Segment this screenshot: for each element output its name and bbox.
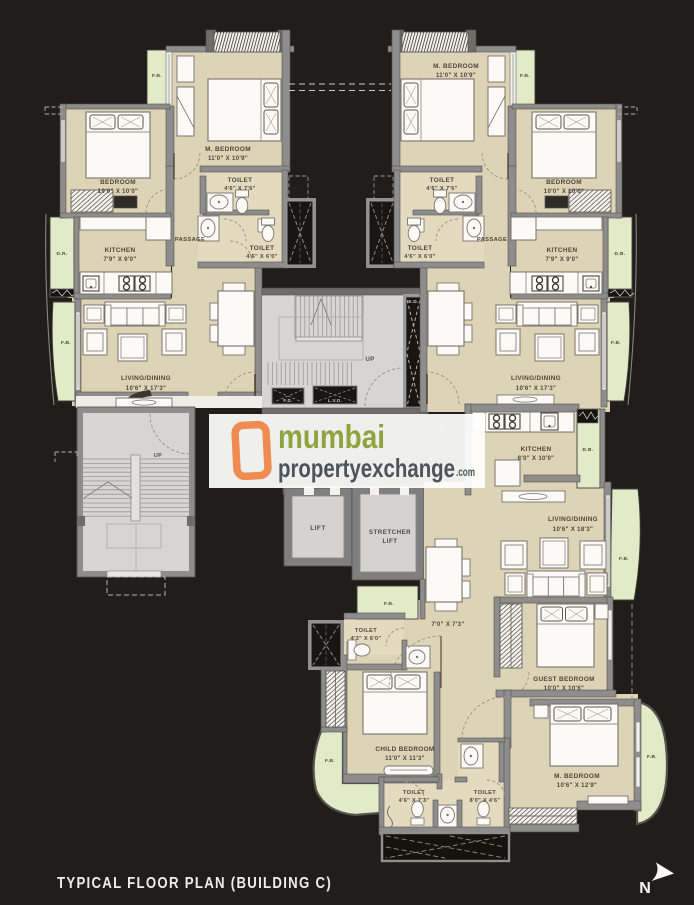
svg-text:LIFT: LIFT — [382, 538, 397, 545]
svg-text:TOILET: TOILET — [408, 245, 433, 252]
svg-text:10'6" X 12'9": 10'6" X 12'9" — [557, 783, 597, 789]
svg-text:.com: .com — [456, 467, 475, 479]
svg-text:10'0" X 10'0": 10'0" X 10'0" — [98, 189, 138, 195]
svg-text:TOILET: TOILET — [250, 245, 275, 252]
svg-text:F.B.: F.B. — [619, 556, 629, 562]
svg-text:E.D.: E.D. — [408, 299, 418, 304]
svg-text:4'6" X 7'6": 4'6" X 7'6" — [426, 186, 458, 192]
svg-text:F.B.: F.B. — [611, 340, 621, 346]
svg-text:4'3" X 6'0": 4'3" X 6'0" — [351, 636, 382, 642]
svg-text:F.D.: F.D. — [283, 398, 292, 403]
svg-text:11'0" X 10'9": 11'0" X 10'9" — [436, 73, 476, 79]
svg-text:UP: UP — [365, 356, 374, 363]
svg-text:F.B.: F.B. — [61, 340, 71, 346]
svg-text:mumbai: mumbai — [278, 418, 385, 455]
svg-text:8'0" X 10'0": 8'0" X 10'0" — [518, 456, 555, 462]
svg-text:LIFT: LIFT — [310, 525, 326, 532]
svg-text:8'0" X 4'6": 8'0" X 4'6" — [470, 798, 501, 804]
svg-text:PASSAGE: PASSAGE — [477, 237, 507, 243]
svg-text:PASSAGE: PASSAGE — [175, 237, 205, 243]
svg-text:BEDROOM: BEDROOM — [546, 179, 582, 186]
svg-text:TOILET: TOILET — [403, 790, 425, 796]
svg-text:N: N — [639, 880, 651, 897]
svg-text:11'0" X 10'9": 11'0" X 10'9" — [208, 156, 248, 162]
svg-text:F.B.: F.B. — [325, 758, 335, 764]
svg-text:F.B.: F.B. — [647, 754, 657, 760]
svg-text:GUEST BEDROOM: GUEST BEDROOM — [533, 676, 595, 683]
svg-text:D.B.: D.B. — [615, 251, 626, 257]
svg-text:7'9" X 9'0": 7'9" X 9'0" — [103, 257, 136, 263]
svg-text:M. BEDROOM: M. BEDROOM — [433, 63, 479, 70]
svg-text:F.B.: F.B. — [152, 73, 162, 79]
svg-text:TOILET: TOILET — [355, 628, 377, 634]
svg-text:LIVING/DINING: LIVING/DINING — [548, 516, 598, 523]
svg-text:propertyexchange: propertyexchange — [278, 453, 455, 483]
svg-text:M. BEDROOM: M. BEDROOM — [554, 773, 600, 780]
svg-text:STRETCHER: STRETCHER — [369, 529, 411, 536]
svg-text:TYPICAL FLOOR PLAN (BUILDING C: TYPICAL FLOOR PLAN (BUILDING C) — [57, 875, 332, 892]
svg-text:7'0" X 7'3": 7'0" X 7'3" — [431, 622, 464, 628]
svg-text:L.V.D.: L.V.D. — [328, 398, 342, 403]
svg-text:CHILD BEDROOM: CHILD BEDROOM — [375, 746, 434, 753]
svg-text:BEDROOM: BEDROOM — [100, 179, 136, 186]
svg-text:KITCHEN: KITCHEN — [521, 446, 552, 453]
svg-text:10'6" X 18'3": 10'6" X 18'3" — [553, 527, 593, 533]
svg-text:M. BEDROOM: M. BEDROOM — [205, 146, 251, 153]
svg-text:10'0" X 10'6": 10'0" X 10'6" — [544, 686, 584, 692]
svg-text:UP: UP — [154, 453, 162, 459]
svg-text:LIVING/DINING: LIVING/DINING — [121, 375, 171, 382]
svg-text:TOILET: TOILET — [228, 177, 253, 184]
svg-text:KITCHEN: KITCHEN — [547, 247, 578, 254]
svg-text:4'6" X 6'0": 4'6" X 6'0" — [246, 254, 278, 260]
svg-text:TOILET: TOILET — [474, 790, 496, 796]
svg-text:F.B.: F.B. — [520, 73, 530, 79]
svg-text:D.R.: D.R. — [57, 251, 68, 257]
svg-text:KITCHEN: KITCHEN — [105, 247, 136, 254]
svg-text:11'0" X 11'3": 11'0" X 11'3" — [385, 756, 425, 762]
svg-text:4'6" X 6'0": 4'6" X 6'0" — [404, 254, 436, 260]
svg-text:D.B.: D.B. — [583, 447, 594, 453]
svg-text:LIVING/DINING: LIVING/DINING — [511, 375, 561, 382]
svg-text:7'9" X 9'0": 7'9" X 9'0" — [545, 257, 578, 263]
svg-text:F.B.: F.B. — [384, 601, 394, 607]
svg-text:10'0" X 10'0": 10'0" X 10'0" — [544, 189, 584, 195]
svg-text:4'6" X 7'3": 4'6" X 7'3" — [399, 798, 430, 804]
svg-text:4'6" X 7'6": 4'6" X 7'6" — [224, 186, 256, 192]
svg-text:TOILET: TOILET — [430, 177, 455, 184]
svg-text:10'6" X 17'3": 10'6" X 17'3" — [516, 386, 556, 392]
